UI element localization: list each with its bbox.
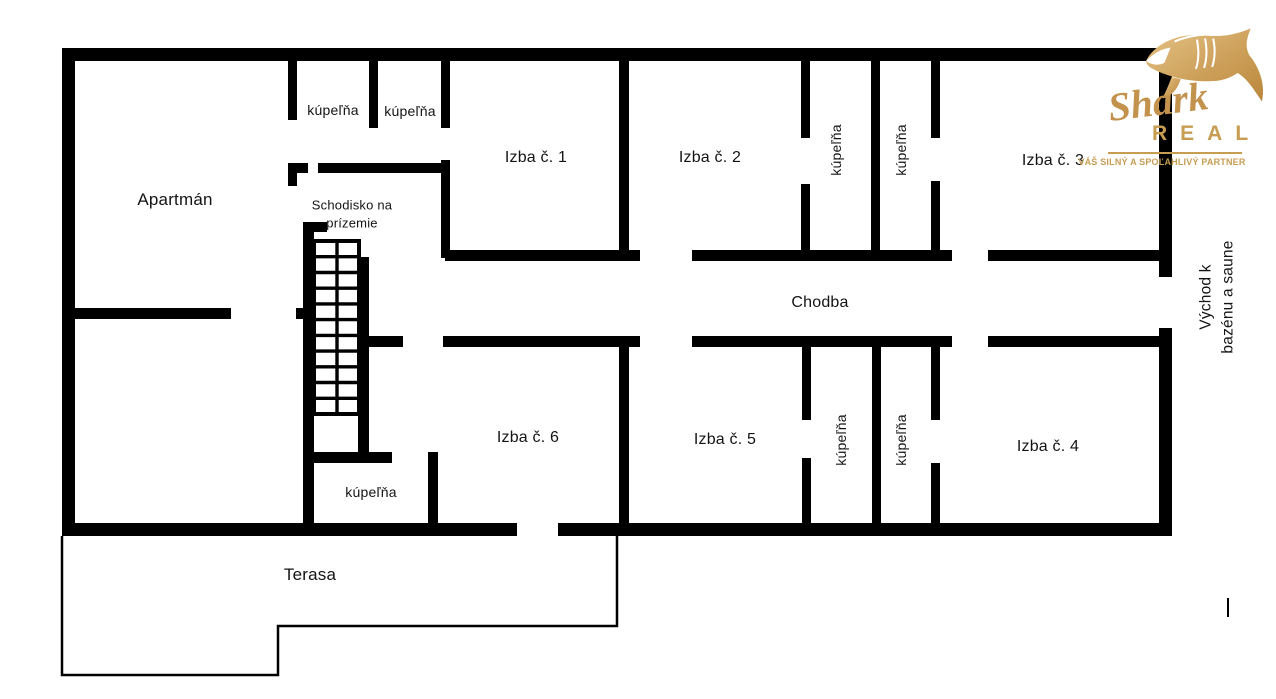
logo-tagline: VÁŠ SILNÝ A SPOĽAHLIVÝ PARTNER xyxy=(1074,157,1250,167)
room-label-apartman: Apartmán xyxy=(137,190,212,210)
interior-walls xyxy=(62,55,1172,528)
room-label-terasa: Terasa xyxy=(284,565,336,585)
room-label-izba-1: Izba č. 1 xyxy=(505,149,567,167)
terrace-outline xyxy=(62,536,617,675)
room-label-izba-4: Izba č. 4 xyxy=(1017,438,1079,456)
vychod-line-1: Východ k xyxy=(1196,240,1218,353)
logo-divider xyxy=(1108,152,1242,154)
room-label-kupelna-bot-1: kúpeľňa xyxy=(833,414,849,465)
room-label-kupelna-tl-2: kúpeľňa xyxy=(384,103,435,119)
room-label-kupelna-top-2: kúpeľňa xyxy=(893,124,909,175)
room-label-kupelna-bl: kúpeľňa xyxy=(345,484,396,500)
staircase xyxy=(303,222,369,528)
room-label-izba-6: Izba č. 6 xyxy=(497,429,559,447)
room-label-izba-5: Izba č. 5 xyxy=(694,431,756,449)
schodisko-line-1: Schodisko na xyxy=(312,196,392,214)
room-label-izba-2: Izba č. 2 xyxy=(679,149,741,167)
schodisko-line-2: prízemie xyxy=(312,214,392,232)
exit-label-vychod: Východ k bazénu a saune xyxy=(1196,240,1241,353)
shark-real-logo: Shark REAL VÁŠ SILNÝ A SPOĽAHLIVÝ PARTNE… xyxy=(1060,20,1260,185)
floor-plan: Apartmán kúpeľňa kúpeľňa Izba č. 1 Izba … xyxy=(0,0,1276,699)
room-label-kupelna-bot-2: kúpeľňa xyxy=(893,414,909,465)
logo-word: REAL xyxy=(1152,122,1261,146)
room-label-kupelna-tl-1: kúpeľňa xyxy=(307,102,358,118)
room-label-kupelna-top-1: kúpeľňa xyxy=(828,124,844,175)
vychod-line-2: bazénu a saune xyxy=(1218,240,1240,353)
room-label-schodisko: Schodisko na prízemie xyxy=(312,196,392,231)
outer-walls xyxy=(62,48,1172,536)
room-label-chodba: Chodba xyxy=(791,294,848,312)
